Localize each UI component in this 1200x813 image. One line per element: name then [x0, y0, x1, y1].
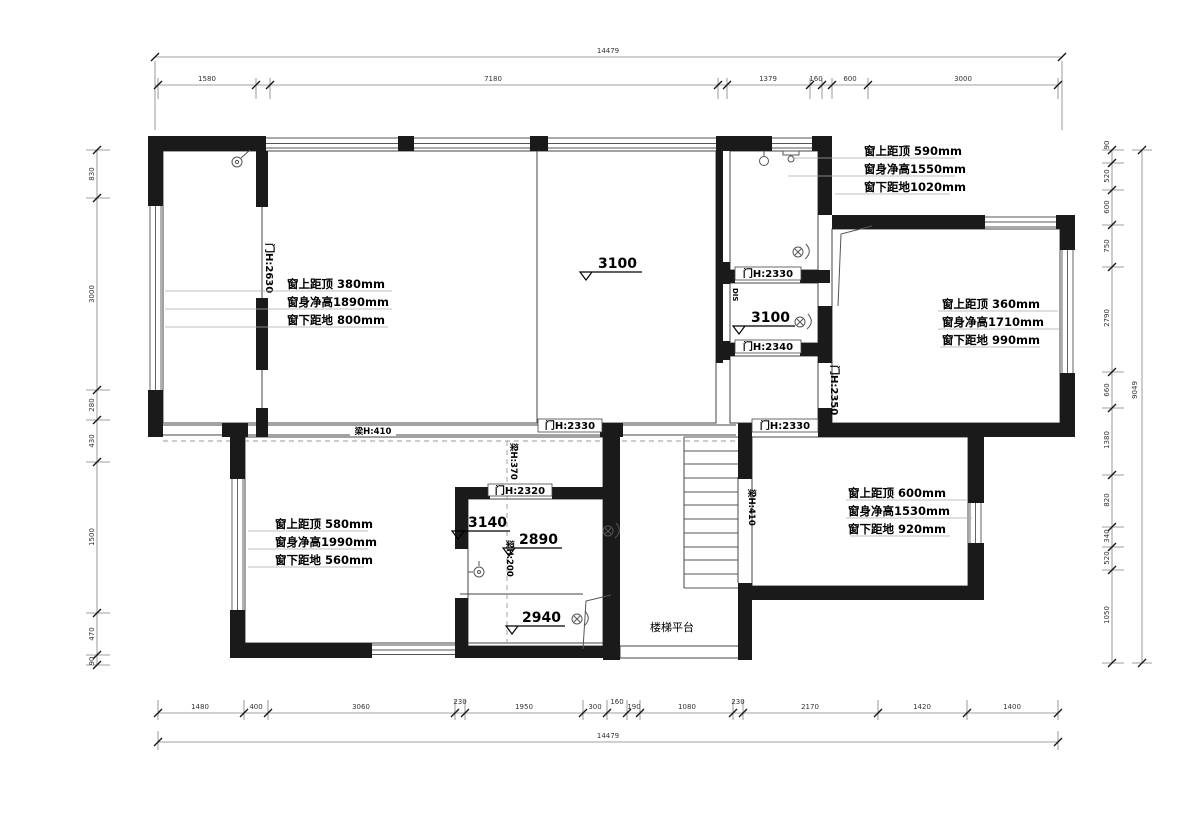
door-label-2330b: 门H:2330: [545, 419, 595, 432]
floorplan-drawing: 14479 1580 7180 1379 160 600 3000 1480 4…: [0, 0, 1200, 813]
dim-bot-5: 300: [588, 703, 601, 711]
win2-line3: 窗下距地 800mm: [287, 313, 385, 327]
dim-right-8: 340: [1103, 529, 1111, 542]
annotation-win5: 窗上距顶 600mm 窗身净高1530mm 窗下距地 920mm: [848, 486, 950, 536]
walls: [148, 136, 1075, 660]
shower-symbol: [793, 244, 809, 259]
ceiling-light-symbol: [232, 150, 250, 167]
beam-label-370: 梁H:370: [508, 442, 519, 480]
dim-bot-9: 230: [731, 698, 744, 706]
dim-right-1: 520: [1103, 169, 1111, 182]
level-3100a: 3100: [598, 256, 637, 272]
door-leaf: [838, 226, 872, 306]
beam-label-410b: 梁H:410: [746, 488, 757, 526]
level-3140: 3140: [468, 515, 507, 531]
dim-right-7: 820: [1103, 493, 1111, 506]
beam-label-200: 梁H:200: [504, 539, 515, 577]
level-marker: [580, 272, 642, 280]
level-2940: 2940: [522, 610, 561, 626]
win3-line3: 窗下距地 990mm: [942, 333, 1040, 347]
win3-line2: 窗身净高1710mm: [942, 315, 1044, 329]
dim-bot-10: 2170: [801, 703, 819, 711]
floorplan-page: 14479 1580 7180 1379 160 600 3000 1480 4…: [0, 0, 1200, 813]
dim-left-4: 1500: [88, 528, 96, 546]
fixtures: [232, 150, 872, 649]
door-label-2330c: 门H:2330: [760, 419, 810, 432]
dim-bot-12: 1400: [1003, 703, 1021, 711]
win2-line1: 窗上距顶 380mm: [287, 277, 385, 291]
dim-right-2: 600: [1103, 200, 1111, 213]
dim-left-1: 3000: [88, 285, 96, 303]
dim-left-2: 280: [88, 398, 96, 411]
win4-line3: 窗下距地 560mm: [275, 553, 373, 567]
dim-bot-11: 1420: [913, 703, 931, 711]
dim-left-0: 830: [88, 167, 96, 180]
level-3100b: 3100: [751, 310, 790, 326]
win1-line1: 窗上距顶 590mm: [864, 144, 962, 158]
annotation-win4: 窗上距顶 580mm 窗身净高1990mm 窗下距地 560mm: [275, 517, 377, 567]
door-label-2330a: 门H:2330: [743, 267, 793, 280]
dim-top-4: 600: [843, 75, 856, 83]
dim-bot-8: 1080: [678, 703, 696, 711]
level-2890: 2890: [519, 532, 558, 548]
dim-top-2: 1379: [759, 75, 777, 83]
shower-symbol: [572, 611, 588, 626]
dim-bot-6: 160: [610, 698, 623, 706]
dim-bot-4: 1950: [515, 703, 533, 711]
shower-symbol: [795, 314, 811, 329]
level-marker: [506, 626, 565, 634]
dim-left-5: 470: [88, 627, 96, 640]
dim-top-total: 14479: [597, 47, 619, 55]
dim-right-0: 90: [1103, 141, 1111, 150]
dim-right-6: 1380: [1103, 431, 1111, 449]
dim-top-5: 3000: [954, 75, 972, 83]
win5-line1: 窗上距顶 600mm: [848, 486, 946, 500]
win3-line1: 窗上距顶 360mm: [942, 297, 1040, 311]
door-label-2350: 门H:2350: [828, 365, 841, 415]
dim-top-1: 7180: [484, 75, 502, 83]
annotation-win3: 窗上距顶 360mm 窗身净高1710mm 窗下距地 990mm: [942, 297, 1044, 347]
dim-bottom-total: 14479: [597, 732, 619, 740]
dim-left-6: 90: [88, 657, 96, 666]
dim-bot-3: 230: [453, 698, 466, 706]
annotation-win2: 窗上距顶 380mm 窗身净高1890mm 窗下距地 800mm: [287, 277, 389, 327]
dim-right-total: 9049: [1131, 381, 1139, 399]
dim-right-4: 2790: [1103, 309, 1111, 327]
win4-line2: 窗身净高1990mm: [275, 535, 377, 549]
stairs: [684, 437, 738, 588]
door-label-2340: 门H:2340: [743, 340, 793, 353]
dim-right-3: 750: [1103, 239, 1111, 252]
win1-line3: 窗下距地1020mm: [864, 180, 966, 194]
dim-right-9: 520: [1103, 551, 1111, 564]
dim-left-3: 430: [88, 434, 96, 447]
annotation-win1: 窗上距顶 590mm 窗身净高1550mm 窗下距地1020mm: [864, 144, 966, 194]
beam-label-410: 梁H:410: [354, 426, 392, 437]
dim-right-10: 1050: [1103, 606, 1111, 624]
dim-right-5: 660: [1103, 383, 1111, 396]
dim-bot-7: 190: [627, 703, 640, 711]
dim-bot-1: 400: [249, 703, 262, 711]
dis-label: DIS: [731, 288, 739, 301]
door-label-2630: 门H:2630: [263, 243, 276, 293]
win5-line3: 窗下距地 920mm: [848, 522, 946, 536]
door-label-2320: 门H:2320: [495, 484, 545, 497]
floor-drain-symbol: [468, 561, 484, 577]
win4-line1: 窗上距顶 580mm: [275, 517, 373, 531]
dim-top-0: 1580: [198, 75, 216, 83]
win1-line2: 窗身净高1550mm: [864, 162, 966, 176]
dim-bot-2: 3060: [352, 703, 370, 711]
dim-bot-0: 1480: [191, 703, 209, 711]
win2-line2: 窗身净高1890mm: [287, 295, 389, 309]
win5-line2: 窗身净高1530mm: [848, 504, 950, 518]
stair-platform-label: 楼梯平台: [650, 620, 694, 634]
level-marker: [733, 326, 795, 334]
dim-top-3: 160: [809, 75, 822, 83]
